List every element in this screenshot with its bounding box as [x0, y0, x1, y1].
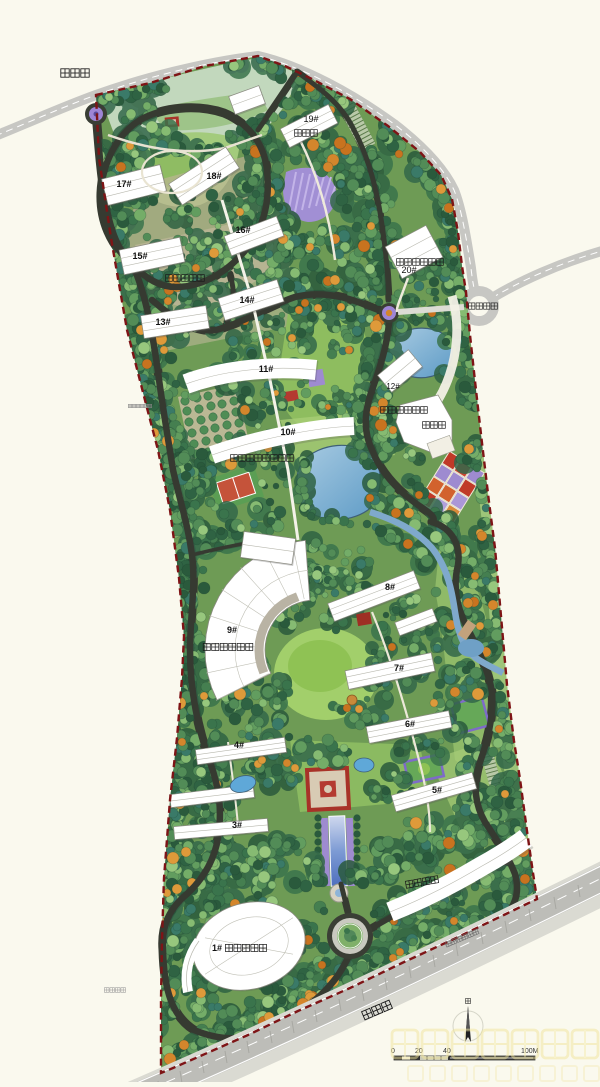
- svg-text:8#: 8#: [385, 582, 395, 592]
- svg-text:9#: 9#: [227, 625, 237, 635]
- svg-text:10#: 10#: [280, 427, 295, 437]
- svg-text:13#: 13#: [155, 317, 170, 327]
- svg-text:3#: 3#: [232, 820, 242, 830]
- svg-text:19#: 19#: [303, 114, 318, 124]
- svg-text:15#: 15#: [132, 251, 147, 261]
- svg-text:18#: 18#: [206, 171, 221, 181]
- svg-text:20#: 20#: [401, 265, 416, 275]
- svg-text:6#: 6#: [405, 719, 415, 729]
- svg-text:4#: 4#: [234, 740, 244, 750]
- svg-text:14#: 14#: [239, 295, 254, 305]
- svg-text:16#: 16#: [235, 225, 250, 235]
- svg-text:12#: 12#: [386, 382, 400, 391]
- svg-text:5#: 5#: [432, 785, 442, 795]
- svg-text:7#: 7#: [394, 663, 404, 673]
- svg-text:11#: 11#: [259, 364, 274, 374]
- svg-text:1#: 1#: [212, 943, 222, 953]
- svg-text:17#: 17#: [116, 179, 131, 189]
